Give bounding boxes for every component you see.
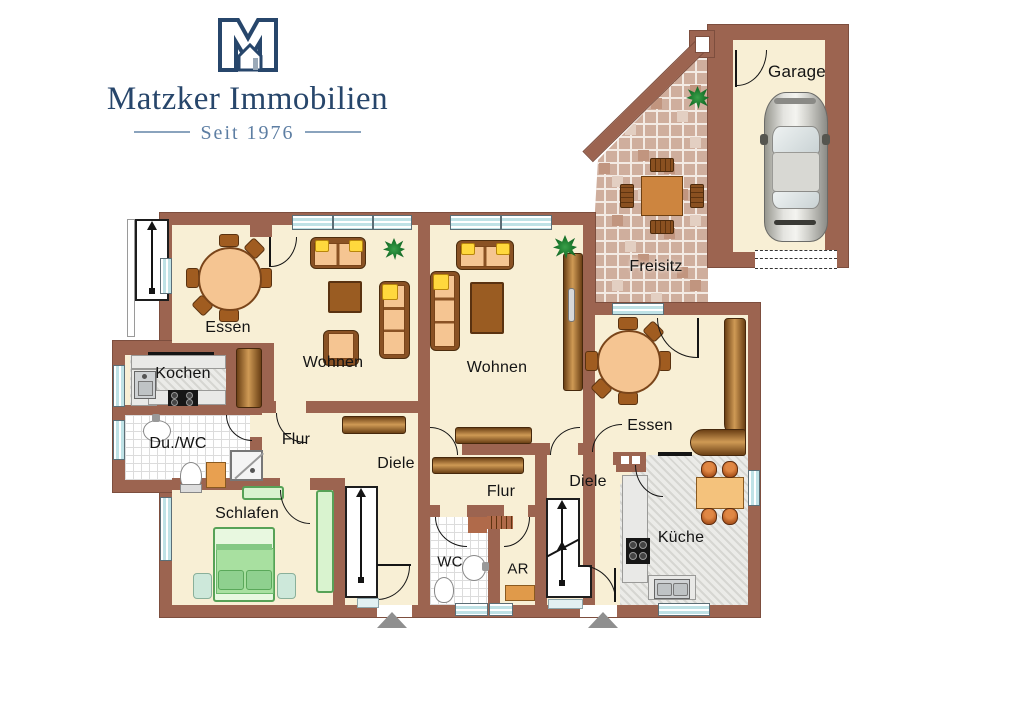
sink-basin xyxy=(657,583,672,596)
sideboard-corner xyxy=(690,429,746,456)
room-label-diele-right: Diele xyxy=(569,473,606,491)
sofa-pillow xyxy=(461,243,475,255)
wall-segment xyxy=(262,401,276,413)
room-label-kueche: Küche xyxy=(658,529,704,547)
stairs-arrow-dot xyxy=(358,577,364,583)
sink-basin xyxy=(138,381,153,396)
car-windshield xyxy=(772,126,820,154)
wall-segment xyxy=(250,225,272,237)
entrance-arrow-icon xyxy=(377,612,407,628)
window xyxy=(160,258,172,294)
toilet xyxy=(434,577,454,603)
car-mirror xyxy=(760,134,768,145)
garage-wall-notch xyxy=(695,36,710,53)
burner xyxy=(186,392,193,399)
kitchen-table xyxy=(696,477,744,509)
room-label-flur-left: Flur xyxy=(282,431,310,449)
kitchen-counter xyxy=(622,475,648,583)
bed-blanket-fold xyxy=(216,544,272,550)
coffee-table xyxy=(470,282,504,334)
car-rear-trim xyxy=(774,220,816,225)
car-icon xyxy=(764,92,828,242)
room-label-flur-right: Flur xyxy=(487,483,515,501)
room-label-schlafen: Schlafen xyxy=(215,505,279,523)
burner xyxy=(629,552,637,560)
sideboard xyxy=(342,416,406,434)
wardrobe-tall xyxy=(316,490,334,593)
washbasin-tap xyxy=(152,414,160,422)
stairs-arrow-head xyxy=(147,221,157,230)
car-rear-window xyxy=(772,191,820,209)
wardrobe xyxy=(236,348,262,408)
washbasin-tap xyxy=(482,562,489,571)
window xyxy=(160,497,172,561)
room-label-essen-right: Essen xyxy=(627,417,672,435)
sofa-pillow xyxy=(433,274,449,290)
door-mat xyxy=(548,599,583,609)
room-label-kochen: Kochen xyxy=(155,365,210,383)
sideboard xyxy=(455,427,532,444)
room-label-du-wc: Du./WC xyxy=(149,435,206,453)
patio-chair xyxy=(650,220,674,234)
wardrobe-small xyxy=(242,486,284,500)
wall-segment xyxy=(583,225,595,422)
sliding-door-panel xyxy=(563,253,583,391)
chair xyxy=(219,234,239,247)
sink-basin xyxy=(673,583,688,596)
exterior-ledge xyxy=(127,219,135,337)
stool xyxy=(722,461,738,478)
wall-segment xyxy=(226,355,236,405)
window xyxy=(113,365,125,407)
burner xyxy=(639,541,647,549)
tagline-dash-right xyxy=(305,131,361,133)
toilet-tank xyxy=(180,484,202,493)
room-label-wohnen-left: Wohnen xyxy=(303,354,364,372)
wall-segment xyxy=(306,401,418,413)
wall-segment xyxy=(488,517,500,605)
kitchen-sink xyxy=(654,579,690,599)
wall-segment xyxy=(333,490,345,605)
sliding-door-handle xyxy=(568,288,575,322)
window xyxy=(748,470,760,506)
room-label-wohnen-right: Wohnen xyxy=(467,359,528,377)
room-label-garage: Garage xyxy=(768,62,826,82)
burner xyxy=(629,541,637,549)
room-label-essen-left: Essen xyxy=(205,319,250,337)
chimney-flue xyxy=(621,456,629,464)
window xyxy=(113,420,125,460)
window xyxy=(455,603,488,616)
car-roof xyxy=(772,152,820,192)
burner xyxy=(186,399,193,406)
wall-segment xyxy=(528,505,547,517)
window xyxy=(658,603,710,616)
entrance-arrow-icon xyxy=(588,612,618,628)
pillow xyxy=(246,570,272,590)
stairs-arrow-line xyxy=(360,494,362,580)
wall-steps-landing xyxy=(468,517,487,533)
burner xyxy=(171,392,178,399)
burner xyxy=(171,399,178,406)
window-divider xyxy=(372,215,374,230)
burner xyxy=(639,552,647,560)
stove xyxy=(626,538,650,564)
nightstand xyxy=(277,573,296,599)
floorplan-page: Matzker Immobilien Seit 1976 xyxy=(0,0,1024,724)
window-divider xyxy=(500,215,502,230)
stool xyxy=(701,461,717,478)
sink-faucet xyxy=(142,374,147,379)
stove xyxy=(168,390,198,406)
pass-through-counter-edge xyxy=(658,452,692,456)
room-label-wc: WC xyxy=(437,554,462,571)
tile-accents xyxy=(599,163,610,174)
pillow xyxy=(218,570,244,590)
kochen-counter-edge xyxy=(148,352,214,355)
patio-chair xyxy=(620,184,634,208)
sofa-pillow xyxy=(382,284,398,300)
chair xyxy=(618,317,638,330)
stool xyxy=(701,508,717,525)
bath-cabinet xyxy=(206,462,226,488)
wall-segment xyxy=(310,478,345,490)
stairs-arrow-dot xyxy=(149,288,155,294)
window xyxy=(489,603,513,616)
patio-table xyxy=(641,176,683,216)
wall-party xyxy=(418,225,430,617)
coffee-table xyxy=(328,281,362,313)
company-logo: Matzker Immobilien Seit 1976 xyxy=(90,14,405,145)
company-tagline-row: Seit 1976 xyxy=(90,122,405,145)
patio-chair xyxy=(690,184,704,208)
company-name: Matzker Immobilien xyxy=(90,81,405,118)
tagline-dash-left xyxy=(134,131,190,133)
window xyxy=(292,215,412,230)
car-front-trim xyxy=(774,98,816,104)
shower-drain xyxy=(250,468,255,473)
stairs-arrow-head xyxy=(356,488,366,497)
dining-table-round xyxy=(597,330,661,394)
stairs-arrow-dot xyxy=(559,580,565,586)
m-house-logo-icon xyxy=(210,14,286,74)
stairs-arrow-head xyxy=(557,500,567,509)
room-label-ar: AR xyxy=(507,561,528,578)
stairs-arrow-line xyxy=(151,228,153,290)
shower xyxy=(230,450,263,481)
nightstand xyxy=(193,573,212,599)
sideboard xyxy=(432,457,524,474)
dining-table-round xyxy=(198,247,262,311)
car-mirror xyxy=(822,134,830,145)
sideboard-tall xyxy=(724,318,746,436)
door-mat xyxy=(357,598,379,608)
sofa-pillow xyxy=(496,243,510,255)
room-label-diele-left: Diele xyxy=(377,455,414,473)
shower-line xyxy=(234,452,263,479)
room-label-freisitz: Freisitz xyxy=(629,258,682,276)
wall-segment xyxy=(430,505,440,517)
window xyxy=(612,303,664,315)
garage-door-slat xyxy=(755,258,837,259)
garage-door-opening xyxy=(755,250,837,269)
storage-cabinet xyxy=(505,585,535,601)
sofa-pillow xyxy=(349,240,363,252)
stool xyxy=(722,508,738,525)
chimney-flue xyxy=(632,456,640,464)
door-leaf xyxy=(697,318,699,358)
sofa-pillow xyxy=(315,240,329,252)
window-divider xyxy=(332,215,334,230)
kitchen-sink xyxy=(134,371,156,399)
patio-chair xyxy=(650,158,674,172)
company-tagline: Seit 1976 xyxy=(200,122,294,144)
